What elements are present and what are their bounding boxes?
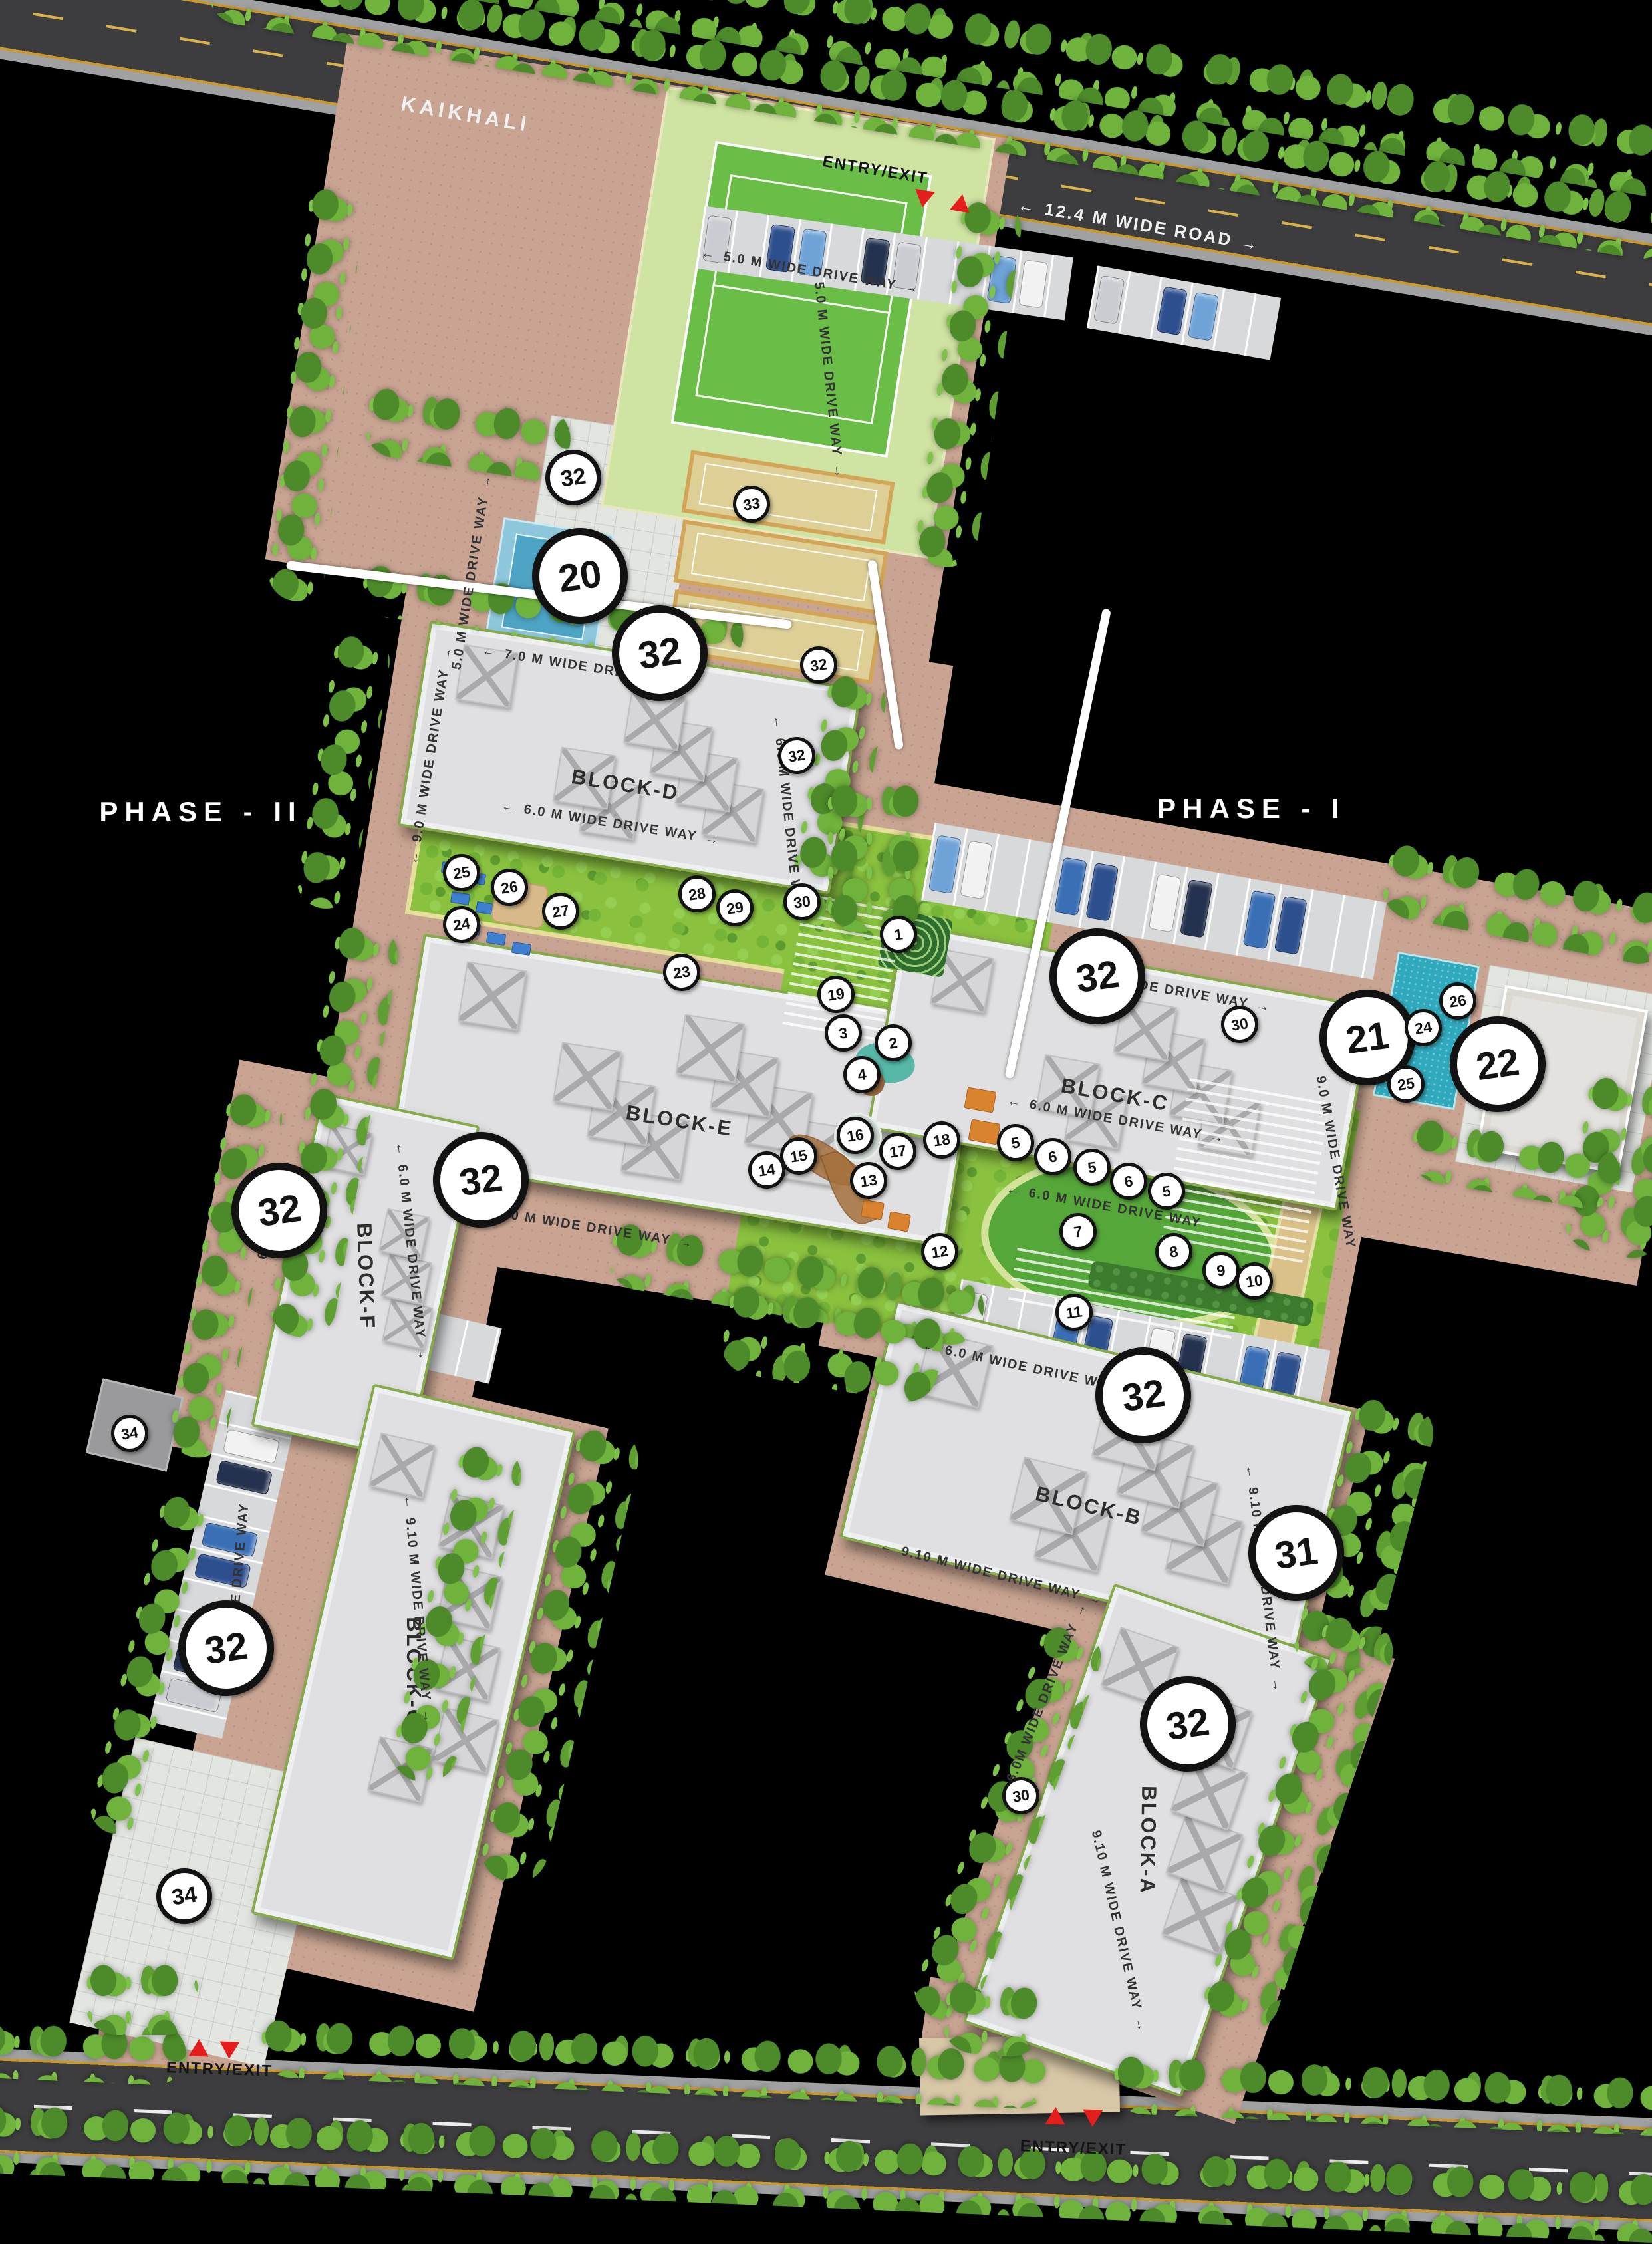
car (1085, 862, 1119, 922)
roof-unit-icon (676, 1014, 745, 1083)
marker-number: 25 (1396, 1074, 1415, 1094)
roof-unit-icon (322, 1125, 373, 1176)
car (1018, 259, 1048, 308)
arrow-left-icon: ← (392, 1141, 408, 1157)
bench-deco (887, 1211, 911, 1232)
roof-unit-icon (436, 1564, 503, 1631)
arrow-right-icon: → (1268, 1677, 1286, 1694)
label-entry: ENTRY/EXIT (1020, 2137, 1127, 2160)
roof-unit-icon (438, 1492, 505, 1559)
arrow-left-icon: ← (1005, 1182, 1022, 1199)
entry-down-triangle-icon (1083, 2109, 1103, 2127)
marker-number: 27 (551, 901, 570, 921)
marker-number: 32 (809, 655, 828, 675)
marker-number: 12 (930, 1242, 949, 1262)
marker-number: 14 (757, 1160, 776, 1180)
site-plan-canvas: BLOCK-DBLOCK-EBLOCK-FBLOCK-GBLOCK-CBLOCK… (0, 0, 1652, 2233)
label-phase: PHASE - I (1157, 793, 1346, 825)
marker-number: 26 (1448, 991, 1467, 1011)
label-text: PHASE - II (99, 796, 302, 828)
arrow-left-icon: ← (700, 245, 717, 263)
marker-number: 11 (1065, 1302, 1083, 1322)
arrow-right-icon: → (1255, 998, 1272, 1016)
arrow-right-icon: → (903, 279, 920, 297)
marker-number: 31 (1272, 1528, 1320, 1578)
marker-number: 5 (1161, 1182, 1172, 1201)
entry-down-triangle-icon (219, 2041, 240, 2059)
car (987, 255, 1017, 303)
car (928, 835, 962, 895)
entry-up-triangle-icon (1045, 2106, 1066, 2124)
entry-up-triangle-icon (189, 2038, 209, 2056)
tennis-area (670, 141, 932, 458)
marker-number: 10 (1244, 1271, 1264, 1291)
car (960, 840, 993, 900)
parking-strip (1087, 265, 1281, 360)
car (223, 1429, 280, 1464)
roof-unit-icon (434, 1635, 501, 1702)
marker-number: 30 (1011, 1786, 1030, 1806)
bench-deco (861, 1199, 885, 1220)
marker-number: 23 (672, 962, 691, 982)
block-label: BLOCK-A (1135, 1786, 1161, 1895)
car (1149, 873, 1182, 933)
marker-number: 34 (170, 1882, 199, 1911)
marker-number: 19 (826, 984, 845, 1004)
marker-number: 30 (792, 892, 811, 912)
marker-number: 32 (787, 746, 806, 766)
marker-number: 22 (1473, 1039, 1522, 1089)
marker-number: 32 (202, 1623, 250, 1673)
car (1243, 890, 1276, 950)
marker-number: 34 (120, 1423, 139, 1443)
marker-number: 7 (1073, 1222, 1083, 1242)
label-text: ENTRY/EXIT (1020, 2137, 1127, 2160)
arrow-right-icon: → (438, 645, 456, 662)
marker-number: 15 (789, 1146, 808, 1166)
arrow-left-icon: ← (1242, 1464, 1260, 1480)
roof-unit-icon (367, 1736, 434, 1802)
arrow-left-icon: ← (1016, 194, 1039, 217)
marker-number: 30 (1230, 1014, 1249, 1034)
entry-up-triangle-icon (950, 193, 972, 213)
arrow-left-icon: ← (400, 1494, 417, 1510)
arrow-left-icon: ← (500, 799, 517, 816)
marker-number: 28 (687, 884, 706, 904)
marker-number: 5 (1087, 1158, 1097, 1177)
marker-number: 1 (893, 925, 904, 944)
marker-number: 32 (1073, 951, 1121, 1001)
arrow-right-icon: → (830, 464, 847, 480)
marker-number: 29 (725, 898, 744, 918)
label-text: ENTRY/EXIT (166, 2058, 273, 2081)
arrow-right-icon: → (419, 1709, 436, 1725)
arrow-right-icon: → (704, 831, 720, 848)
marker-number: 17 (888, 1141, 907, 1161)
marker-number: 33 (742, 494, 761, 514)
marker-number: 24 (452, 914, 471, 934)
arrow-left-icon: ← (921, 1338, 938, 1356)
arrow-right-icon: → (1239, 231, 1262, 255)
roof-unit-icon (368, 1433, 435, 1499)
roof-unit-icon (432, 1707, 499, 1773)
marker-number: 4 (857, 1065, 867, 1085)
marker-number: 2 (888, 1034, 898, 1053)
arrow-left-icon: ← (406, 849, 424, 865)
marker-number: 24 (1413, 1018, 1433, 1038)
car (1274, 895, 1308, 955)
marker-number: 8 (1169, 1242, 1179, 1262)
marker-number: 9 (1216, 1261, 1226, 1280)
marker-number: 32 (1163, 1699, 1212, 1749)
roof-unit-icon (1161, 1876, 1239, 1954)
car (1157, 286, 1188, 335)
car (1054, 857, 1087, 916)
entry-down-triangle-icon (912, 189, 935, 210)
marker-number: 16 (845, 1125, 865, 1145)
arrow-right-icon: → (1209, 1129, 1226, 1147)
marker-number: 5 (1010, 1133, 1021, 1153)
arrow-left-icon: ← (481, 643, 497, 660)
label-text: PHASE - I (1157, 793, 1346, 825)
marker-number: 32 (255, 1185, 303, 1235)
marker-number: 3 (838, 1024, 849, 1043)
marker-number: 6 (1047, 1147, 1058, 1167)
label-entry: ENTRY/EXIT (166, 2058, 273, 2081)
label-phase: PHASE - II (99, 796, 302, 828)
arrow-right-icon: → (238, 1480, 255, 1496)
marker-number: 21 (1343, 1012, 1391, 1062)
marker-number: 18 (932, 1130, 951, 1150)
marker-number: 25 (452, 863, 471, 883)
marker-number: 26 (499, 877, 519, 897)
marker-number: 32 (1119, 1370, 1167, 1420)
arrow-right-icon: → (678, 1234, 694, 1252)
arrow-right-icon: → (414, 1346, 430, 1362)
marker-number: 32 (635, 628, 684, 678)
car (1188, 291, 1219, 341)
marker-number: 32 (559, 463, 588, 492)
arrow-right-icon: → (478, 473, 495, 490)
car (1093, 275, 1125, 324)
car (1180, 879, 1213, 938)
roof-unit-icon (1165, 1814, 1243, 1892)
marker-number: 13 (859, 1171, 878, 1191)
marker-number: 20 (555, 551, 604, 601)
arrow-left-icon: ← (769, 715, 786, 731)
arrow-left-icon: ← (1006, 1093, 1024, 1111)
marker-number: 32 (456, 1155, 505, 1204)
marker-number: 6 (1123, 1172, 1134, 1191)
roof-unit-icon (553, 1042, 622, 1111)
arrow-left-icon: ← (878, 1538, 896, 1557)
block-label: BLOCK-F (352, 1222, 380, 1330)
roof-unit-icon (458, 961, 527, 1030)
